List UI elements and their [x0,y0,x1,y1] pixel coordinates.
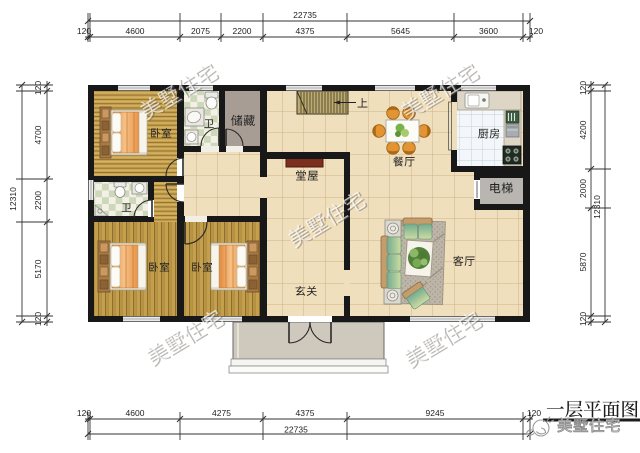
svg-text:22735: 22735 [293,10,317,20]
svg-text:2000: 2000 [578,179,588,198]
svg-text:120: 120 [77,26,91,36]
svg-text:5870: 5870 [578,252,588,271]
svg-text:120: 120 [527,408,541,418]
svg-text:120: 120 [33,312,43,326]
svg-text:120: 120 [578,81,588,95]
svg-text:4600: 4600 [126,26,145,36]
svg-text:22735: 22735 [284,425,308,435]
svg-text:120: 120 [77,408,91,418]
svg-text:120: 120 [529,26,543,36]
svg-text:5170: 5170 [33,259,43,278]
svg-text:4375: 4375 [296,26,315,36]
svg-text:4700: 4700 [33,125,43,144]
svg-text:3600: 3600 [479,26,498,36]
svg-text:120: 120 [578,312,588,326]
svg-text:120: 120 [33,81,43,95]
svg-text:4600: 4600 [126,408,145,418]
svg-text:5645: 5645 [391,26,410,36]
svg-text:4275: 4275 [212,408,231,418]
svg-text:9245: 9245 [426,408,445,418]
svg-text:12310: 12310 [8,187,18,211]
svg-text:2200: 2200 [233,26,252,36]
svg-text:12310: 12310 [592,195,602,219]
svg-text:4200: 4200 [578,120,588,139]
svg-text:2075: 2075 [191,26,210,36]
svg-text:4375: 4375 [296,408,315,418]
svg-text:2200: 2200 [33,191,43,210]
